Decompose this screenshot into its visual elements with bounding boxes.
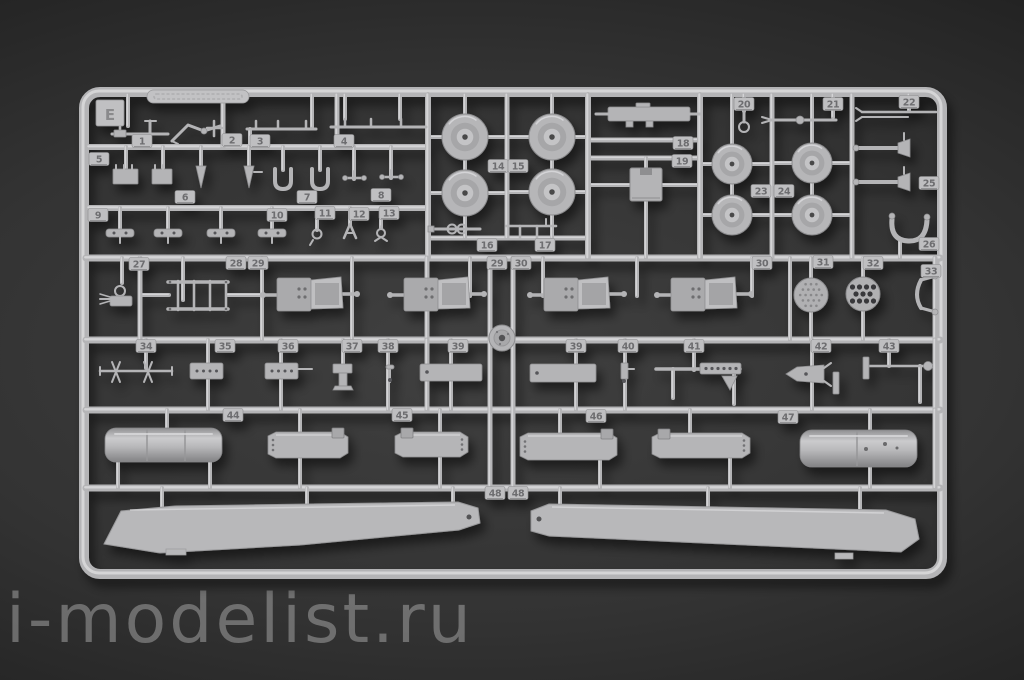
svg-text:15: 15 (512, 161, 524, 172)
part-tag-23: 23 (751, 185, 771, 198)
svg-text:21: 21 (827, 99, 839, 110)
part-t-bit-b (380, 170, 404, 180)
svg-text:22: 22 (903, 97, 915, 108)
part-45-b (395, 428, 468, 457)
part-tag-44: 44 (223, 409, 243, 422)
part-tag-35: 35 (215, 340, 235, 353)
svg-text:38: 38 (382, 341, 395, 352)
part-tag-43: 43 (879, 340, 899, 353)
part-25-a (853, 133, 910, 157)
sprue-photo-scene: i-modelist.ru E 123456789101112131415161… (0, 0, 1024, 680)
part-tag-3: 3 (250, 135, 270, 148)
part-tag-32: 32 (863, 257, 883, 270)
part-22-pitot (856, 108, 936, 121)
part-tag-13: 13 (379, 207, 399, 220)
part-tag-21: 21 (823, 98, 843, 111)
part-tag-25: 25 (919, 177, 939, 190)
part-tag-11: 11 (315, 207, 335, 220)
seat-1 (260, 277, 360, 311)
part-tag-45: 45 (392, 409, 412, 422)
svg-text:42: 42 (815, 341, 827, 352)
sprue: E 12345678910111213141516171819202122232… (0, 0, 1024, 680)
part-tag-10: 10 (267, 209, 287, 222)
large-wheel-4 (792, 195, 832, 235)
part-tag-42: 42 (811, 340, 831, 353)
part-tag-30: 30 (511, 257, 531, 270)
part-31-mesh-disc (794, 278, 828, 312)
svg-text:44: 44 (227, 410, 240, 421)
small-wheel-3 (442, 170, 488, 216)
part-tag-37: 37 (342, 340, 362, 353)
part-tag-48: 48 (485, 487, 505, 500)
part-tag-17: 17 (535, 239, 555, 252)
svg-text:6: 6 (182, 192, 189, 203)
part-2-cross (207, 121, 222, 136)
svg-text:16: 16 (481, 240, 494, 251)
part-tag-27: 27 (129, 258, 149, 271)
small-wheel-4 (529, 169, 575, 215)
svg-text:27: 27 (133, 259, 145, 270)
mold-stamp-plate (147, 90, 249, 103)
svg-text:4: 4 (341, 136, 348, 147)
svg-text:17: 17 (539, 240, 551, 251)
center-hub-disc (489, 325, 515, 351)
part-39-plate-a (420, 364, 482, 381)
part-19-box (630, 168, 662, 201)
svg-text:40: 40 (622, 341, 635, 352)
part-41-arm (656, 363, 741, 390)
part-12-plate (258, 229, 286, 243)
part-11-plate (207, 229, 235, 243)
part-tag-26: 26 (919, 238, 939, 251)
svg-text:28: 28 (230, 258, 243, 269)
svg-text:30: 30 (515, 258, 528, 269)
part-tag-30: 30 (752, 257, 772, 270)
svg-text:14: 14 (492, 161, 505, 172)
part-34-antenna (100, 362, 172, 382)
svg-text:20: 20 (738, 99, 751, 110)
part-16 (428, 225, 480, 234)
part-36-plate (265, 363, 312, 379)
part-tag-7: 7 (297, 191, 317, 204)
part-a-frame (344, 224, 356, 238)
svg-text:19: 19 (676, 156, 688, 167)
part-tag-34: 34 (136, 340, 156, 353)
svg-text:48: 48 (512, 488, 525, 499)
part-tag-12: 12 (349, 208, 369, 221)
part-3-rod (247, 121, 316, 129)
svg-text:29: 29 (491, 258, 503, 269)
svg-text:8: 8 (378, 190, 385, 201)
part-tag-19: 19 (672, 155, 692, 168)
svg-text:36: 36 (282, 341, 295, 352)
svg-text:41: 41 (688, 341, 700, 352)
part-43-crank (863, 357, 933, 379)
sprue-letter-tab: E (96, 100, 124, 126)
part-ring-prop (375, 226, 387, 241)
svg-text:26: 26 (923, 239, 936, 250)
part-20-hook (739, 110, 749, 132)
part-tag-16: 16 (477, 239, 497, 252)
part-9-plate (106, 229, 134, 243)
svg-text:10: 10 (271, 210, 284, 221)
part-tag-36: 36 (278, 340, 298, 353)
part-tag-18: 18 (673, 137, 693, 150)
part-tag-2: 2 (222, 134, 242, 147)
svg-text:E: E (105, 106, 115, 124)
svg-text:11: 11 (319, 208, 331, 219)
part-25-b (853, 167, 910, 191)
small-wheel-1 (442, 114, 488, 160)
part-6-wedge-b (244, 166, 262, 188)
part-4-rod (331, 119, 426, 127)
svg-text:30: 30 (756, 258, 769, 269)
part-tag-47: 47 (778, 411, 798, 424)
svg-text:46: 46 (590, 411, 603, 422)
svg-text:9: 9 (95, 210, 101, 221)
svg-text:34: 34 (140, 341, 153, 352)
part-40 (621, 363, 634, 383)
part-26-fork (889, 213, 930, 241)
svg-text:35: 35 (219, 341, 231, 352)
part-35-plate (190, 363, 223, 379)
svg-text:3: 3 (257, 136, 263, 147)
svg-text:39: 39 (452, 341, 464, 352)
part-46-a (520, 429, 617, 460)
part-48-blade-left (104, 502, 480, 555)
svg-text:23: 23 (755, 186, 767, 197)
part-tag-41: 41 (684, 340, 704, 353)
svg-text:39: 39 (570, 341, 582, 352)
part-t-bit-a (343, 171, 367, 181)
seat-4 (654, 277, 754, 311)
large-wheel-3 (712, 195, 752, 235)
part-tag-24: 24 (774, 185, 794, 198)
part-44-tank (105, 428, 222, 462)
part-6-wedge-a (196, 166, 206, 188)
part-tag-38: 38 (378, 340, 398, 353)
svg-text:43: 43 (883, 341, 895, 352)
part-tag-31: 31 (813, 256, 833, 269)
part-tag-9: 9 (88, 209, 108, 222)
svg-text:31: 31 (817, 257, 829, 268)
part-tag-15: 15 (508, 160, 528, 173)
part-tag-4: 4 (334, 135, 354, 148)
part-48-blade-right (531, 504, 919, 559)
svg-text:5: 5 (96, 154, 102, 165)
part-ring (310, 230, 322, 246)
part-tag-46: 46 (586, 410, 606, 423)
part-10-plate (154, 229, 182, 243)
svg-text:2: 2 (229, 135, 235, 146)
svg-text:7: 7 (304, 192, 310, 203)
part-tag-39: 39 (448, 340, 468, 353)
part-18-bar (596, 103, 700, 127)
part-27 (100, 286, 132, 306)
part-46-b (652, 429, 750, 458)
svg-text:45: 45 (396, 410, 408, 421)
part-tag-33: 33 (921, 265, 941, 278)
large-wheel-2 (792, 143, 832, 183)
svg-text:32: 32 (867, 258, 879, 269)
svg-text:47: 47 (782, 412, 794, 423)
part-tag-20: 20 (734, 98, 754, 111)
part-tag-22: 22 (899, 96, 919, 109)
part-tag-48: 48 (508, 487, 528, 500)
part-tag-14: 14 (488, 160, 508, 173)
part-39-plate-b (530, 364, 596, 382)
part-45-a (268, 428, 348, 458)
part-47-tank (800, 430, 917, 467)
part-28-frame (168, 281, 228, 311)
svg-text:13: 13 (383, 208, 395, 219)
svg-text:24: 24 (778, 186, 791, 197)
part-tag-29: 29 (487, 257, 507, 270)
part-5-clamp-b (152, 165, 172, 184)
part-tag-1: 1 (132, 135, 152, 148)
svg-text:18: 18 (677, 138, 690, 149)
part-tag-5: 5 (89, 153, 109, 166)
part-32-holed-disc (846, 277, 880, 311)
part-37-stand (333, 364, 353, 390)
svg-text:29: 29 (252, 258, 264, 269)
large-wheel-1 (712, 144, 752, 184)
part-tag-28: 28 (226, 257, 246, 270)
svg-text:48: 48 (489, 488, 502, 499)
small-wheel-2 (529, 114, 575, 160)
part-tag-40: 40 (618, 340, 638, 353)
part-tag-39: 39 (566, 340, 586, 353)
part-tag-6: 6 (175, 191, 195, 204)
svg-text:25: 25 (923, 178, 935, 189)
svg-text:37: 37 (346, 341, 358, 352)
part-tag-8: 8 (371, 189, 391, 202)
svg-text:1: 1 (139, 136, 145, 147)
svg-text:12: 12 (353, 209, 365, 220)
svg-text:33: 33 (925, 266, 937, 277)
part-tag-29: 29 (248, 257, 268, 270)
